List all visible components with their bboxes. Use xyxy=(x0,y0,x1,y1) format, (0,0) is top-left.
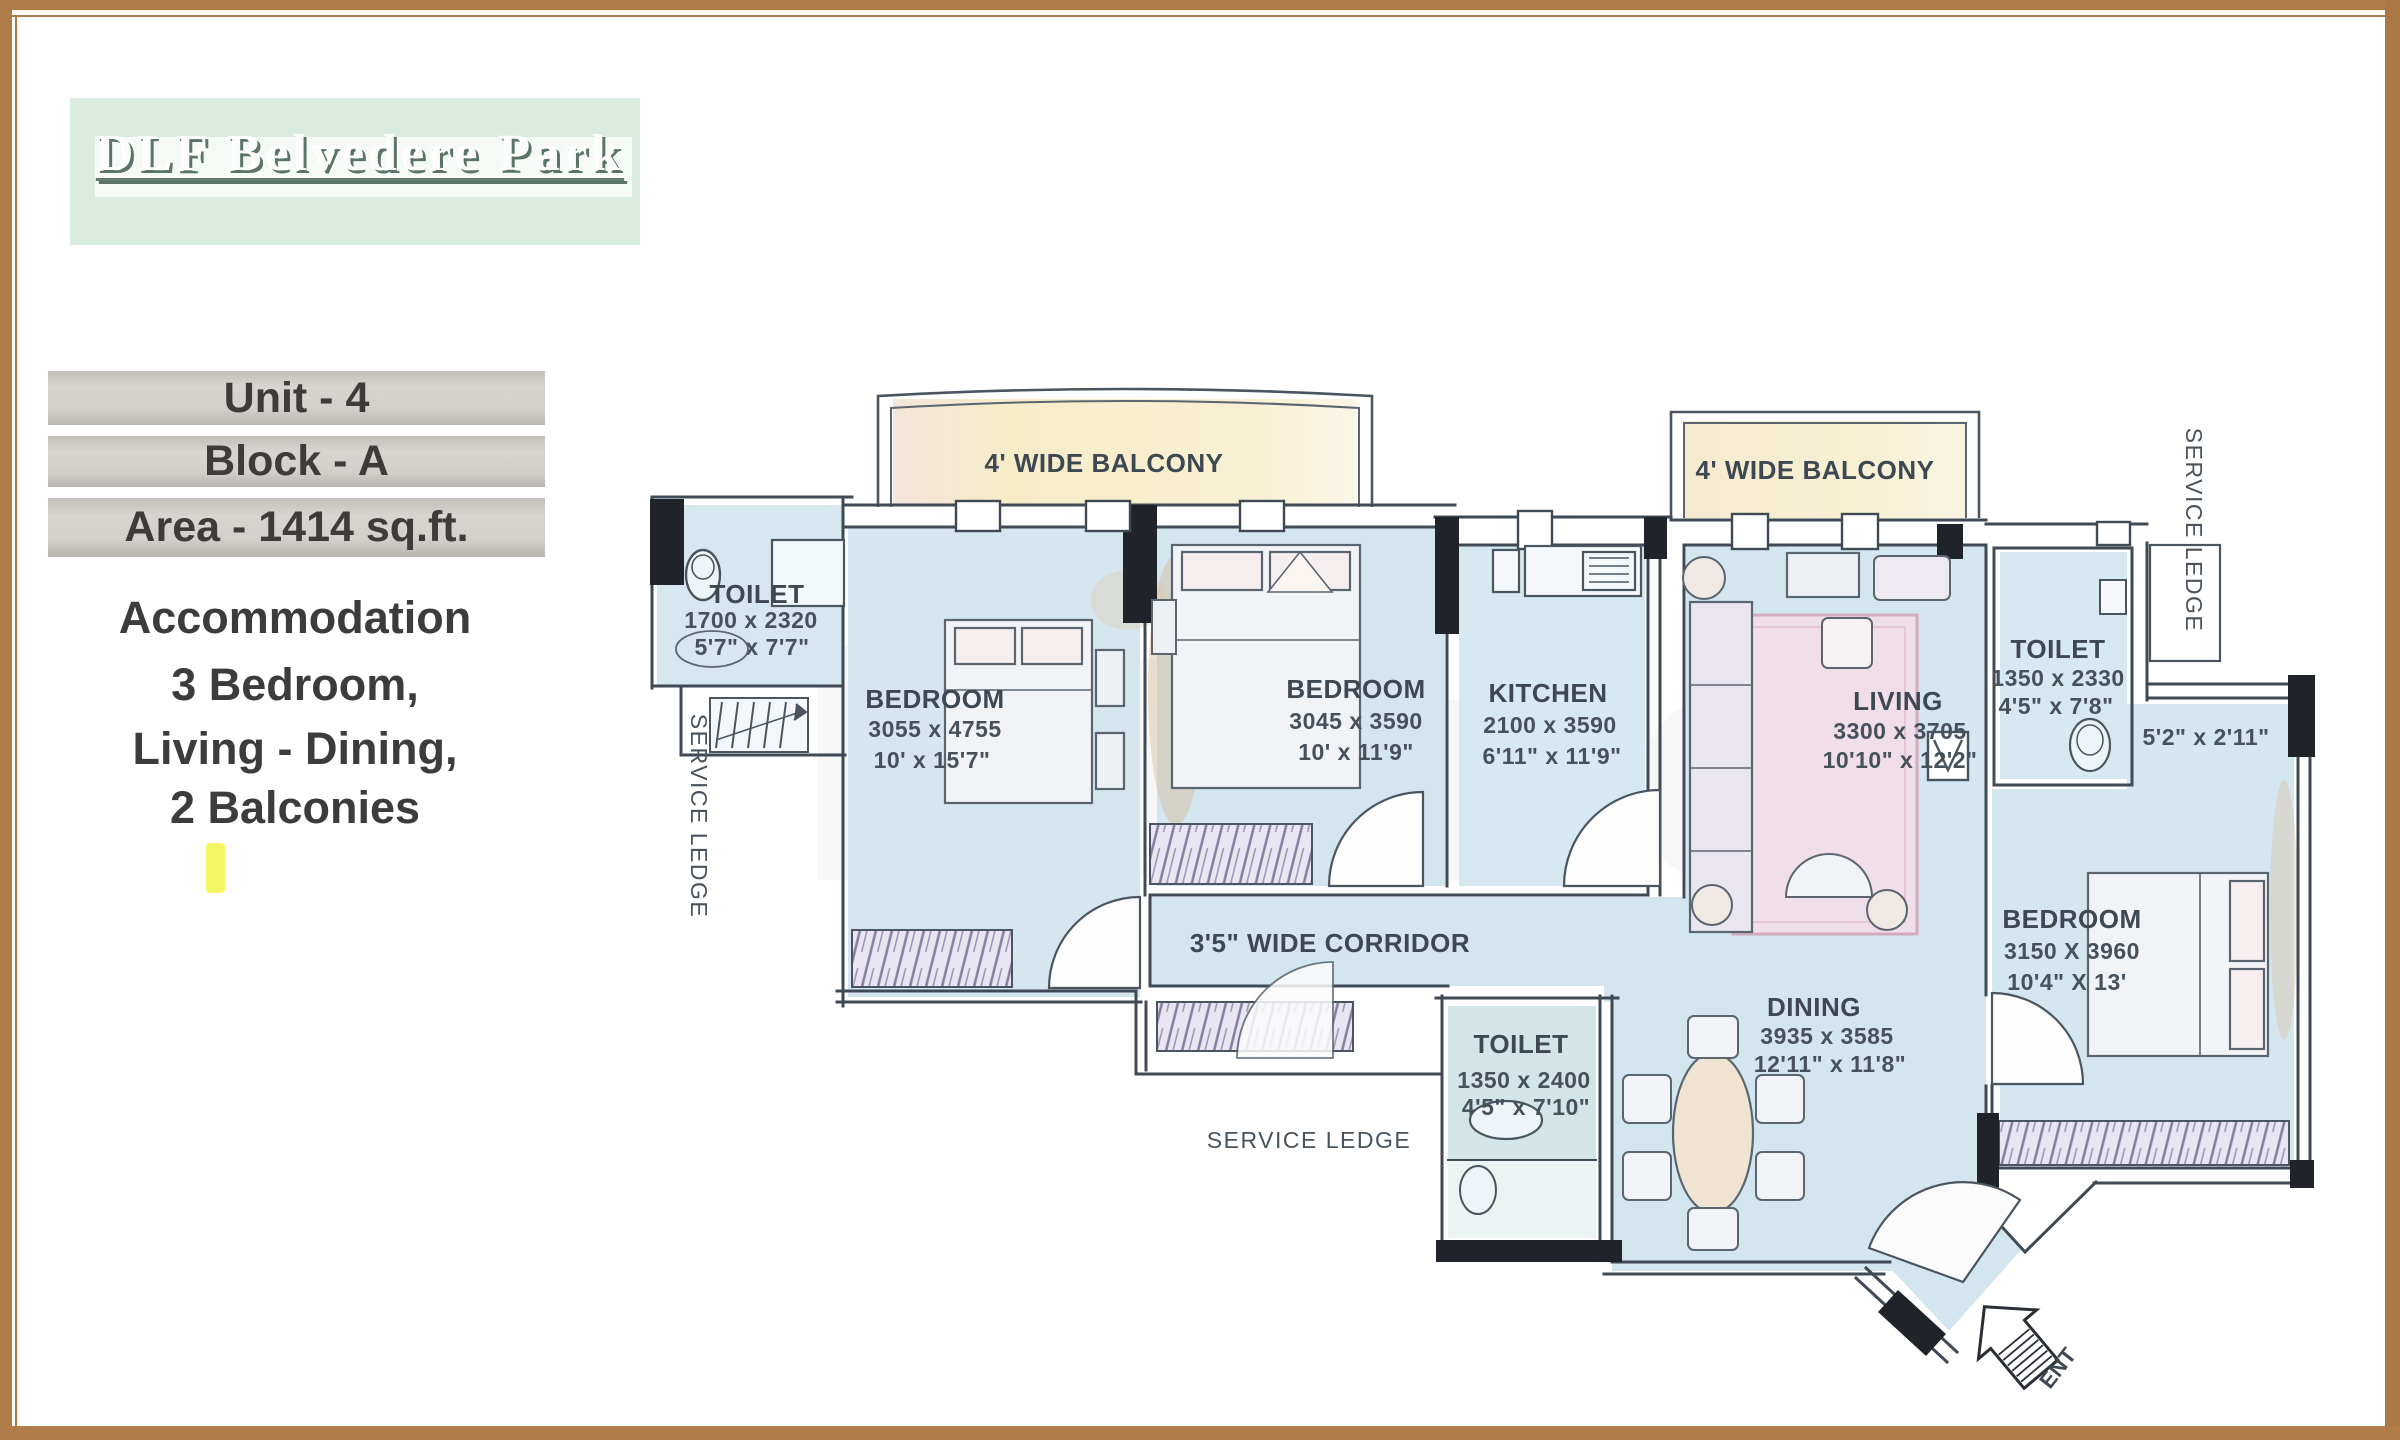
svg-text:LIVING: LIVING xyxy=(1853,686,1943,716)
svg-text:10'4" X 13': 10'4" X 13' xyxy=(2007,969,2126,995)
svg-text:TOILET: TOILET xyxy=(1474,1029,1569,1059)
svg-text:6'11" x 11'9": 6'11" x 11'9" xyxy=(1482,743,1621,769)
svg-text:10'10" x 12'2": 10'10" x 12'2" xyxy=(1823,747,1978,773)
svg-text:KITCHEN: KITCHEN xyxy=(1488,678,1607,708)
svg-text:1350 x 2400: 1350 x 2400 xyxy=(1457,1067,1590,1093)
svg-text:4' WIDE BALCONY: 4' WIDE BALCONY xyxy=(1695,455,1934,485)
svg-text:TOILET: TOILET xyxy=(710,579,805,609)
svg-text:4'5" x 7'10": 4'5" x 7'10" xyxy=(1462,1094,1590,1120)
svg-text:5'2" x 2'11": 5'2" x 2'11" xyxy=(2142,724,2269,750)
svg-text:3150 X 3960: 3150 X 3960 xyxy=(2004,938,2140,964)
svg-text:SERVICE LEDGE: SERVICE LEDGE xyxy=(686,714,712,918)
svg-text:5'7" x 7'7": 5'7" x 7'7" xyxy=(695,634,810,660)
svg-text:1700 x 2320: 1700 x 2320 xyxy=(684,607,817,633)
svg-text:3045 x 3590: 3045 x 3590 xyxy=(1289,708,1422,734)
svg-text:BEDROOM: BEDROOM xyxy=(865,684,1004,714)
svg-text:SERVICE LEDGE: SERVICE LEDGE xyxy=(2181,428,2207,632)
svg-text:3935 x 3585: 3935 x 3585 xyxy=(1760,1023,1893,1049)
svg-text:10' x 11'9": 10' x 11'9" xyxy=(1298,739,1414,765)
svg-text:3055 x 4755: 3055 x 4755 xyxy=(868,716,1001,742)
svg-text:TOILET: TOILET xyxy=(2011,634,2106,664)
svg-text:SERVICE LEDGE: SERVICE LEDGE xyxy=(1207,1127,1411,1153)
svg-text:4'5" x 7'8": 4'5" x 7'8" xyxy=(1999,693,2114,719)
svg-text:2100 x 3590: 2100 x 3590 xyxy=(1483,712,1616,738)
svg-text:10' x 15'7": 10' x 15'7" xyxy=(874,747,991,773)
svg-text:1350 x 2330: 1350 x 2330 xyxy=(1991,665,2124,691)
svg-text:4' WIDE BALCONY: 4' WIDE BALCONY xyxy=(984,448,1223,478)
svg-text:3300 x 3705: 3300 x 3705 xyxy=(1833,718,1966,744)
svg-text:3'5" WIDE CORRIDOR: 3'5" WIDE CORRIDOR xyxy=(1190,928,1470,958)
svg-text:DINING: DINING xyxy=(1767,992,1861,1022)
svg-text:BEDROOM: BEDROOM xyxy=(2002,904,2141,934)
svg-text:12'11" x 11'8": 12'11" x 11'8" xyxy=(1754,1051,1906,1077)
svg-text:BEDROOM: BEDROOM xyxy=(1286,674,1425,704)
